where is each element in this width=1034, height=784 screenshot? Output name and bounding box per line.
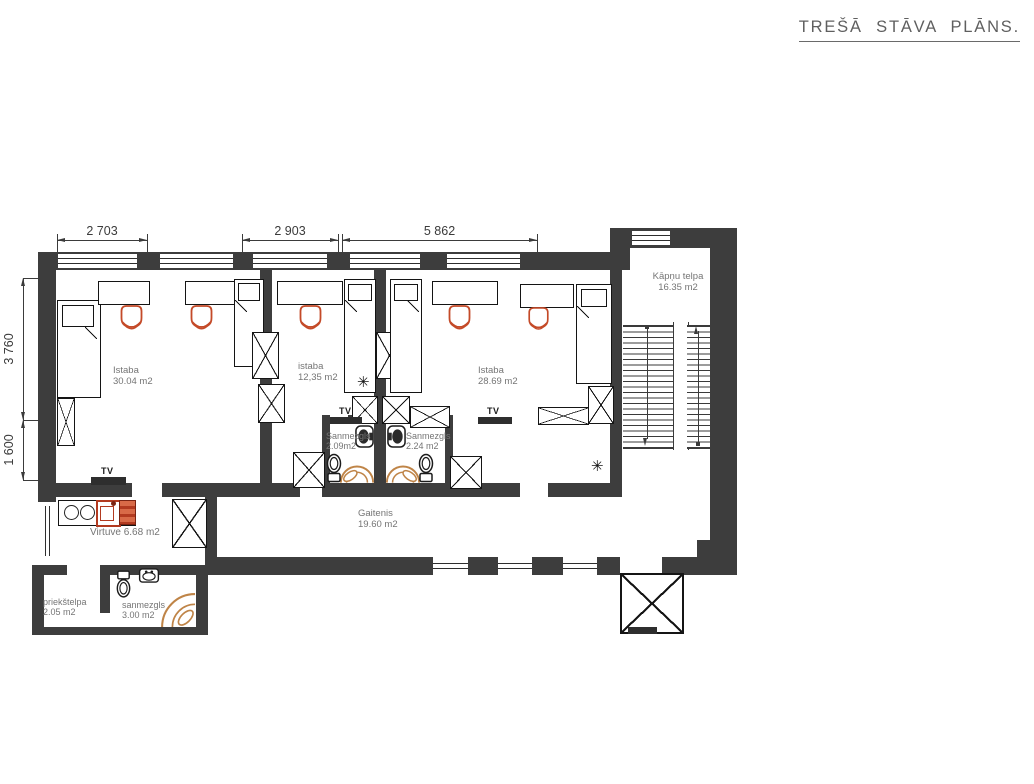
bed-fold (407, 300, 419, 312)
wardrobe-box (258, 384, 285, 423)
bed-fold (235, 300, 247, 312)
stove-burner (64, 505, 79, 520)
wardrobe-box (252, 332, 279, 379)
stair-arrow-down (643, 438, 647, 446)
window (632, 231, 670, 245)
toilet (114, 570, 133, 599)
wall-lower-top (32, 565, 67, 575)
dimension-line (23, 278, 24, 480)
chair (118, 305, 145, 333)
dimension-arrow (139, 238, 147, 242)
dimension-tick (342, 234, 343, 252)
window (160, 254, 233, 268)
dimension-tick (23, 420, 40, 421)
wall-room1-corridor (162, 483, 300, 497)
window (58, 254, 137, 268)
wall-lower-bottom (32, 627, 208, 635)
sink (138, 568, 160, 583)
page-title: TREŠĀ STĀVA PLĀNS. (799, 18, 1020, 42)
room-name: priekštelpa (43, 597, 87, 607)
tv-label: TV (101, 466, 114, 476)
room-label-virtuve: Virtuve 6.68 m2 (90, 527, 160, 539)
dimension-tick (147, 234, 148, 252)
wall-room3-corridor (548, 483, 610, 497)
wall-stairwell-left-upper (610, 228, 630, 270)
window (253, 254, 327, 268)
kitchen-drawers (119, 500, 136, 525)
wall-corridor-bottom (468, 557, 498, 575)
tv-stand (330, 417, 362, 424)
room-name: Virtuve 6.68 m2 (90, 527, 160, 539)
room-area: 2.24 m2 (406, 441, 451, 451)
wardrobe-box (172, 499, 207, 548)
toilet (324, 452, 344, 483)
room-label-sanmezgls1: Sanmezgls 2.09m2 (326, 431, 371, 452)
kitchen-tap (111, 501, 116, 506)
wall-lower-right (196, 565, 208, 635)
room-label-priekstelpa: priekštelpa 2.05 m2 (43, 597, 87, 618)
tv-label: TV (339, 406, 352, 416)
room-area: 2.09m2 (326, 441, 371, 451)
chair (446, 305, 473, 333)
wall-bathroom-bottom (322, 483, 453, 497)
tv-stand (478, 417, 512, 424)
sink (387, 424, 406, 449)
bed-fold (85, 327, 97, 339)
room-name: Sanmezgls (326, 431, 371, 441)
wardrobe-box (410, 406, 450, 428)
wall-corner-block (697, 540, 717, 557)
dimension-label: 2 903 (242, 224, 338, 238)
tv-stand (91, 477, 126, 485)
dimension-arrow (21, 278, 25, 286)
room-label-istaba3: Istaba 28.69 m2 (478, 366, 518, 388)
desk (432, 281, 498, 305)
bed-fold (345, 300, 357, 312)
room-area: 2.05 m2 (43, 607, 87, 617)
wall-left (38, 252, 56, 502)
window (447, 254, 520, 268)
dimension-arrow (57, 238, 65, 242)
bed-pillow (62, 305, 94, 327)
stair-flight-left (623, 325, 673, 449)
wall-corridor-bottom (597, 557, 620, 575)
dimension-arrow (21, 420, 25, 428)
shaft-mark (628, 627, 657, 634)
chair (188, 305, 215, 333)
window (563, 559, 597, 573)
dimension-arrow (342, 238, 350, 242)
wardrobe-box (538, 407, 589, 425)
wall-room1-corridor (56, 483, 132, 497)
dimension-tick (242, 234, 243, 252)
chair (526, 307, 551, 333)
window (42, 506, 53, 556)
wall-priekstelpa-sanmezgls (100, 575, 110, 613)
climate-symbol: ✳ (591, 459, 604, 474)
dimension-arrow (21, 472, 25, 480)
tv-label: TV (487, 406, 500, 416)
room-label-istaba1: Istaba 30.04 m2 (113, 366, 153, 388)
desk (185, 281, 237, 305)
room-area: 30.04 m2 (113, 377, 153, 388)
dimension-tick (338, 234, 339, 252)
floor-plan-page: TREŠĀ STĀVA PLĀNS. (0, 0, 1034, 784)
room-label-sanmezgls3: sanmezgls 3.00 m2 (122, 600, 165, 621)
toilet (416, 452, 436, 483)
climate-symbol: ✳ (357, 375, 370, 390)
dimension-line (57, 240, 147, 241)
stair-direction-dot (696, 442, 700, 446)
bed-pillow (348, 284, 372, 301)
room-area: 12,35 m2 (298, 373, 338, 384)
bed-fold (577, 306, 589, 318)
radiator-box (57, 398, 75, 446)
window (498, 559, 532, 573)
wall-corridor-bottom (208, 557, 433, 575)
wardrobe-box (293, 452, 325, 488)
dimension-tick (537, 234, 538, 252)
wardrobe-box (450, 456, 482, 489)
room-label-kapnu-telpa: Kāpņu telpa 16.35 m2 (628, 272, 728, 294)
dimension-arrow (21, 412, 25, 420)
room-area: 16.35 m2 (628, 283, 728, 294)
desk (520, 284, 574, 308)
desk (277, 281, 343, 305)
wall-corridor-bottom (532, 557, 563, 575)
dimension-line (242, 240, 338, 241)
dimension-label: 3 760 (2, 320, 16, 378)
chair (297, 305, 324, 333)
room-area: 19.60 m2 (358, 520, 398, 531)
dimension-arrow (529, 238, 537, 242)
stair-direction-dot (645, 325, 649, 329)
wardrobe-box (588, 386, 614, 424)
stair-direction-line (698, 331, 699, 443)
room-area: 3.00 m2 (122, 610, 165, 620)
dimension-label: 1 600 (2, 421, 16, 479)
shaft-box (620, 573, 684, 634)
dimension-tick (23, 278, 40, 279)
room-name: Sanmezgls (406, 431, 451, 441)
dimension-tick (23, 480, 40, 481)
stair-arrow-up (694, 326, 698, 334)
window (350, 254, 420, 268)
room-area: 28.69 m2 (478, 377, 518, 388)
bed-pillow (238, 283, 260, 301)
window (433, 559, 468, 573)
dimension-line (342, 240, 537, 241)
room-label-gaitenis: Gaitenis 19.60 m2 (358, 509, 398, 531)
dimension-label: 2 703 (57, 224, 147, 238)
room-label-istaba2: istaba 12,35 m2 (298, 362, 338, 384)
dimension-arrow (242, 238, 250, 242)
desk (98, 281, 150, 305)
room-label-sanmezgls2: Sanmezgls 2.24 m2 (406, 431, 451, 452)
stove-burner (80, 505, 95, 520)
dimension-arrow (330, 238, 338, 242)
bed-pillow (394, 284, 418, 301)
stair-direction-line (647, 327, 648, 439)
wardrobe-box (382, 396, 410, 424)
room-name: sanmezgls (122, 600, 165, 610)
dimension-label: 5 862 (342, 224, 537, 238)
kitchen-sink-basin (100, 506, 114, 521)
bed-pillow (581, 289, 607, 307)
dimension-tick (57, 234, 58, 252)
